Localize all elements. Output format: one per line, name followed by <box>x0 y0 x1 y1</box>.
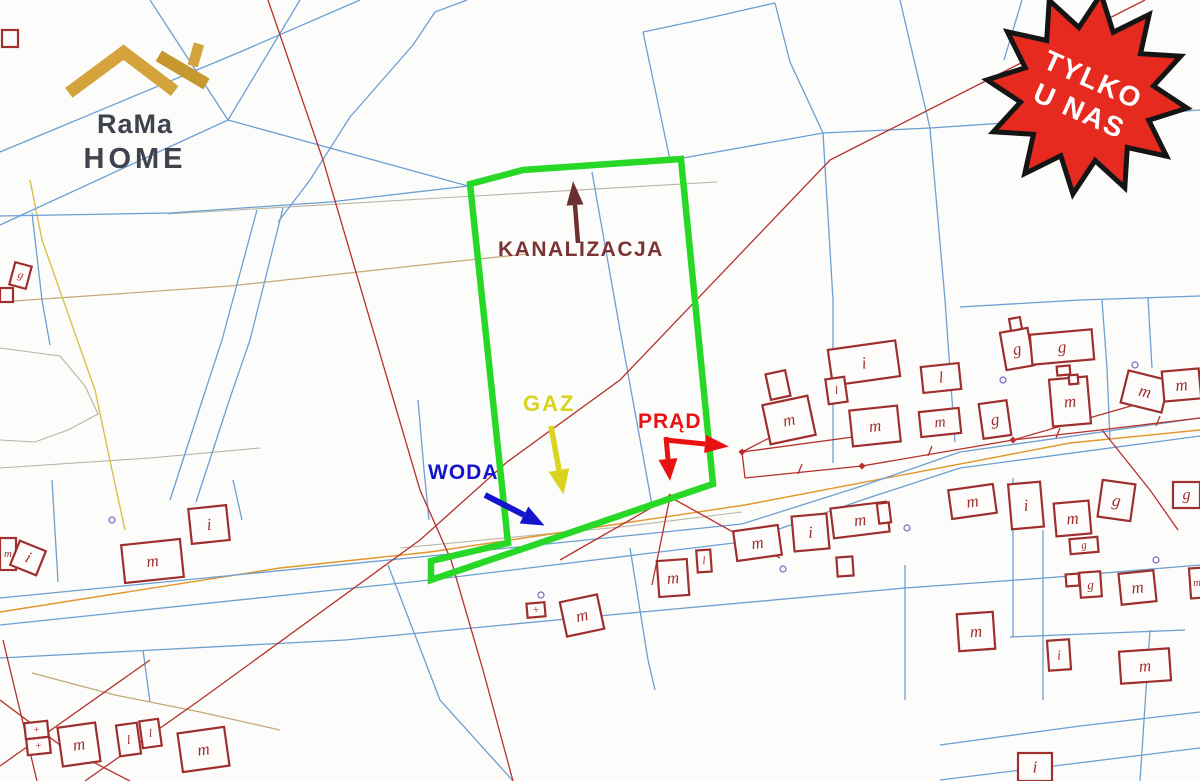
survey-point-icon <box>109 517 115 523</box>
survey-point-icon <box>538 592 544 598</box>
building: m <box>657 559 689 597</box>
building: m <box>733 525 782 561</box>
parcel-boundary-line <box>643 3 775 32</box>
survey-point-icon <box>780 566 786 572</box>
utility-pole-icon <box>738 448 745 455</box>
parcel-boundary-line <box>960 296 1200 307</box>
parcel-boundary-line <box>823 133 833 463</box>
survey-point-icon <box>1153 557 1159 563</box>
parcel-boundary-line <box>1010 630 1185 637</box>
building: m <box>849 406 901 447</box>
building: + <box>26 737 51 755</box>
parcel-boundary-line <box>775 3 823 133</box>
building-label: i <box>1033 758 1038 777</box>
parcel-boundary-line <box>196 208 283 502</box>
building-label: + <box>32 724 41 737</box>
building-label: m <box>965 491 980 512</box>
building <box>836 556 853 576</box>
utility-pole-icon <box>1009 436 1016 443</box>
building <box>1066 574 1080 587</box>
building-label: m <box>196 739 211 760</box>
roof-icon <box>60 38 210 100</box>
building-label: g <box>1057 337 1067 357</box>
woda-arrow <box>485 495 544 525</box>
parcel-boundary-line <box>170 210 257 500</box>
label-woda: WODA <box>428 461 499 485</box>
building: g <box>9 262 31 289</box>
survey-point-icon <box>1132 362 1138 368</box>
building-label: m <box>750 533 765 554</box>
building: l <box>825 377 847 404</box>
parcel-boundary-line <box>1102 300 1110 440</box>
prad-arrow-right <box>666 435 729 453</box>
label-kanalizacja: KANALIZACJA <box>498 238 664 262</box>
survey-point-icon <box>1000 377 1006 383</box>
building: m <box>560 594 604 636</box>
parcel-boundary-line <box>940 712 1200 745</box>
gaz-arrow <box>549 426 570 495</box>
building <box>2 30 18 47</box>
parcel-boundary-line <box>630 548 655 690</box>
building: l <box>116 723 141 757</box>
logo-rama: RaMa <box>60 109 210 140</box>
building-label: m <box>1175 375 1189 395</box>
building: g <box>979 400 1012 439</box>
parcel-boundary-line <box>143 650 150 702</box>
building-label: m <box>1066 509 1080 529</box>
power-line <box>268 0 513 781</box>
building: l <box>139 719 162 748</box>
building: m <box>1054 501 1092 537</box>
power-line <box>1056 428 1060 438</box>
prad-arrow-down <box>659 437 678 481</box>
building-label: m <box>1063 392 1077 412</box>
parcel-boundary-line <box>592 172 652 505</box>
building: m <box>1189 568 1200 599</box>
building: + <box>526 602 545 618</box>
building: g <box>1173 482 1200 508</box>
building <box>766 370 791 400</box>
building: l <box>921 363 962 393</box>
logo-home: HOME <box>60 143 210 176</box>
building-label: m <box>1138 656 1152 676</box>
exclusive-badge: TYLKO U NAS <box>975 0 1200 204</box>
parcel-boundary-line <box>233 480 242 520</box>
building: g <box>1098 480 1136 521</box>
building-label: + <box>34 740 43 753</box>
parcel-boundary-line <box>1148 298 1152 368</box>
logo: RaMa HOME <box>60 38 210 176</box>
building: i <box>792 514 830 552</box>
building: m <box>1119 648 1171 683</box>
building-label: m <box>666 568 680 588</box>
parcel-boundary-line <box>418 400 429 520</box>
building: l <box>696 550 712 573</box>
building-label: m <box>145 551 159 571</box>
building: m <box>178 727 230 772</box>
building <box>1009 317 1022 331</box>
building: m <box>1118 570 1156 604</box>
building: m <box>948 484 997 519</box>
building <box>877 502 891 523</box>
parcel-boundary-line <box>643 32 670 160</box>
building-label: m <box>934 413 947 431</box>
parcel-boundary-line <box>900 0 930 128</box>
building: m <box>121 539 184 583</box>
parcel-boundary-line <box>930 128 955 442</box>
building-label: m <box>1193 577 1200 590</box>
utility-pole-icon <box>858 462 865 469</box>
building-label: m <box>969 622 983 642</box>
parcel-boundary-line <box>228 120 468 186</box>
tan-utility-line <box>0 254 527 302</box>
gray-utility-line <box>168 182 717 214</box>
plot-outline <box>431 159 713 580</box>
survey-point-icon <box>904 525 910 531</box>
parcel-boundary-line <box>940 748 1200 780</box>
building-label: + <box>532 604 540 617</box>
building: g <box>1030 329 1094 364</box>
building: m <box>919 408 961 437</box>
parcel-boundary-line <box>388 565 513 781</box>
label-gaz: GAZ <box>523 391 575 417</box>
label-prad: PRĄD <box>638 410 702 434</box>
building: m <box>1162 368 1200 401</box>
building-label: m <box>1130 577 1144 597</box>
building-label: m <box>853 510 868 530</box>
gray-utility-line <box>0 348 98 442</box>
building: m <box>762 396 815 445</box>
parcel-boundary-line <box>52 480 58 582</box>
building <box>1057 365 1071 375</box>
listing-map: milmlmgggmmmgmimi+mmlmimmimgggmmmim++mll… <box>0 0 1200 781</box>
building: m <box>57 723 100 767</box>
gas-utility-line <box>30 180 125 530</box>
building: i <box>188 505 229 544</box>
building: i <box>1008 482 1044 530</box>
power-line <box>742 452 745 478</box>
building: g <box>1079 571 1102 597</box>
building <box>1069 375 1079 385</box>
building-label: m <box>4 548 12 560</box>
building: i <box>1047 639 1071 670</box>
building: g <box>1069 537 1098 554</box>
building-label: m <box>72 734 87 755</box>
building <box>0 288 13 302</box>
parcel-boundary-line <box>0 436 1200 625</box>
building: m <box>957 612 995 651</box>
building-label: m <box>868 416 882 436</box>
building-label: g <box>1182 487 1190 504</box>
gray-utility-line <box>0 448 260 468</box>
building: i <box>1018 753 1052 781</box>
